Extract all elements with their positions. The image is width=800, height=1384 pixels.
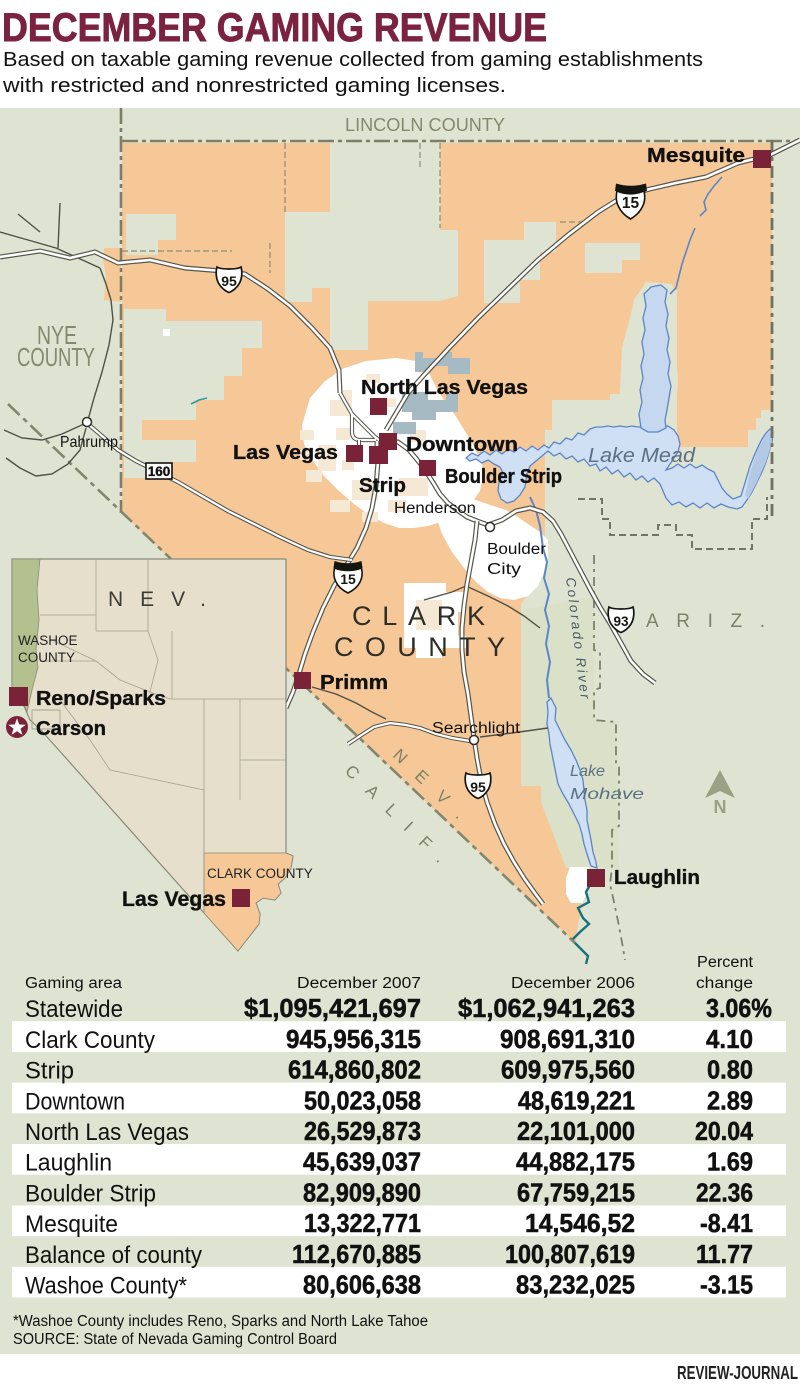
svg-text:80,606,638: 80,606,638: [303, 1272, 421, 1300]
svg-text:COUNTY: COUNTY: [17, 342, 95, 372]
svg-text:95: 95: [221, 273, 237, 289]
svg-text:Boulder: Boulder: [487, 541, 546, 558]
svg-text:Percent: Percent: [697, 954, 754, 971]
svg-text:15: 15: [622, 195, 640, 212]
svg-text:-3.15: -3.15: [700, 1272, 753, 1300]
svg-text:N: N: [714, 797, 727, 817]
svg-text:Downtown: Downtown: [406, 434, 518, 456]
svg-text:112,670,885: 112,670,885: [292, 1241, 421, 1269]
svg-text:WASHOE: WASHOE: [18, 633, 78, 648]
svg-text:95: 95: [470, 779, 486, 795]
svg-text:2.89: 2.89: [707, 1087, 753, 1115]
svg-text:Henderson: Henderson: [394, 500, 476, 517]
svg-text:Statewide: Statewide: [25, 996, 123, 1023]
svg-text:$1,062,941,263: $1,062,941,263: [458, 995, 635, 1023]
svg-text:26,529,873: 26,529,873: [304, 1118, 421, 1146]
svg-text:Balance of county: Balance of county: [25, 1242, 202, 1269]
svg-text:Washoe County*: Washoe County*: [25, 1273, 187, 1300]
svg-text:100,807,619: 100,807,619: [505, 1241, 635, 1269]
svg-text:609,975,560: 609,975,560: [501, 1057, 635, 1085]
svg-text:1.69: 1.69: [707, 1149, 753, 1177]
svg-text:DECEMBER GAMING REVENUE: DECEMBER GAMING REVENUE: [2, 6, 547, 50]
svg-text:Pahrump: Pahrump: [60, 434, 118, 451]
svg-text:20.04: 20.04: [695, 1118, 754, 1146]
svg-text:-8.41: -8.41: [700, 1210, 753, 1238]
svg-text:Laughlin: Laughlin: [614, 867, 700, 889]
svg-text:13,322,771: 13,322,771: [304, 1210, 421, 1238]
svg-text:Laughlin: Laughlin: [25, 1150, 112, 1177]
svg-text:614,860,802: 614,860,802: [288, 1057, 421, 1085]
svg-text:14,546,52: 14,546,52: [525, 1210, 635, 1238]
svg-text:Gaming area: Gaming area: [25, 975, 122, 992]
svg-text:50,023,058: 50,023,058: [304, 1087, 421, 1115]
svg-text:Mesquite: Mesquite: [25, 1211, 118, 1238]
svg-text:Carson: Carson: [36, 718, 106, 740]
svg-text:LINCOLN COUNTY: LINCOLN COUNTY: [345, 115, 505, 135]
svg-text:COUNTY: COUNTY: [18, 650, 75, 665]
svg-text:December 2006: December 2006: [511, 975, 635, 992]
svg-text:Downtown: Downtown: [25, 1088, 125, 1115]
svg-text:Las Vegas: Las Vegas: [122, 888, 226, 911]
svg-text:82,909,890: 82,909,890: [303, 1179, 421, 1207]
svg-text:44,882,175: 44,882,175: [516, 1149, 635, 1177]
svg-text:945,956,315: 945,956,315: [286, 1026, 421, 1054]
svg-text:*Washoe County includes Reno,: *Washoe County includes Reno, Sparks and…: [13, 1313, 428, 1330]
svg-text:4.10: 4.10: [706, 1026, 753, 1054]
svg-text:Clark County: Clark County: [25, 1027, 155, 1054]
svg-text:City: City: [487, 561, 521, 578]
svg-text:11.77: 11.77: [696, 1241, 753, 1269]
svg-text:Las Vegas: Las Vegas: [233, 442, 338, 464]
svg-text:93: 93: [613, 614, 629, 629]
svg-text:67,759,215: 67,759,215: [517, 1179, 635, 1207]
svg-text:Mohave: Mohave: [570, 786, 644, 803]
svg-text:45,639,037: 45,639,037: [303, 1149, 421, 1177]
svg-text:Boulder Strip: Boulder Strip: [25, 1180, 156, 1207]
svg-text:REVIEW-JOURNAL: REVIEW-JOURNAL: [677, 1363, 798, 1383]
svg-text:Searchlight: Searchlight: [432, 720, 521, 737]
svg-text:0.80: 0.80: [707, 1057, 753, 1085]
svg-text:Lake Mead: Lake Mead: [588, 445, 696, 467]
svg-text:North Las Vegas: North Las Vegas: [25, 1119, 189, 1146]
svg-text:83,232,025: 83,232,025: [516, 1272, 635, 1300]
svg-text:Mesquite: Mesquite: [647, 145, 745, 167]
svg-text:change: change: [696, 975, 753, 992]
svg-text:North Las Vegas: North Las Vegas: [361, 377, 528, 399]
svg-text:908,691,310: 908,691,310: [500, 1026, 635, 1054]
svg-text:CLARK COUNTY: CLARK COUNTY: [207, 866, 313, 881]
svg-text:Strip: Strip: [25, 1058, 74, 1085]
svg-text:Strip: Strip: [359, 475, 406, 497]
svg-text:$1,095,421,697: $1,095,421,697: [244, 995, 421, 1023]
svg-text:15: 15: [340, 571, 356, 587]
svg-text:Reno/Sparks: Reno/Sparks: [36, 688, 166, 710]
svg-text:Boulder Strip: Boulder Strip: [445, 466, 562, 488]
svg-text:with restricted and nonrestric: with restricted and nonrestricted gaming…: [2, 74, 506, 97]
svg-text:December 2007: December 2007: [297, 975, 421, 992]
svg-text:3.06%: 3.06%: [706, 995, 772, 1023]
svg-text:SOURCE: State of Nevada Gaming: SOURCE: State of Nevada Gaming Control B…: [13, 1331, 337, 1348]
svg-text:Lake: Lake: [570, 763, 605, 780]
svg-text:22,101,000: 22,101,000: [517, 1118, 635, 1146]
svg-text:48,619,221: 48,619,221: [518, 1087, 635, 1115]
svg-text:160: 160: [148, 464, 171, 479]
svg-text:Primm: Primm: [320, 672, 388, 694]
svg-text:Based on taxable gaming revenu: Based on taxable gaming revenue collecte…: [3, 48, 703, 71]
svg-text:22.36: 22.36: [696, 1179, 753, 1207]
